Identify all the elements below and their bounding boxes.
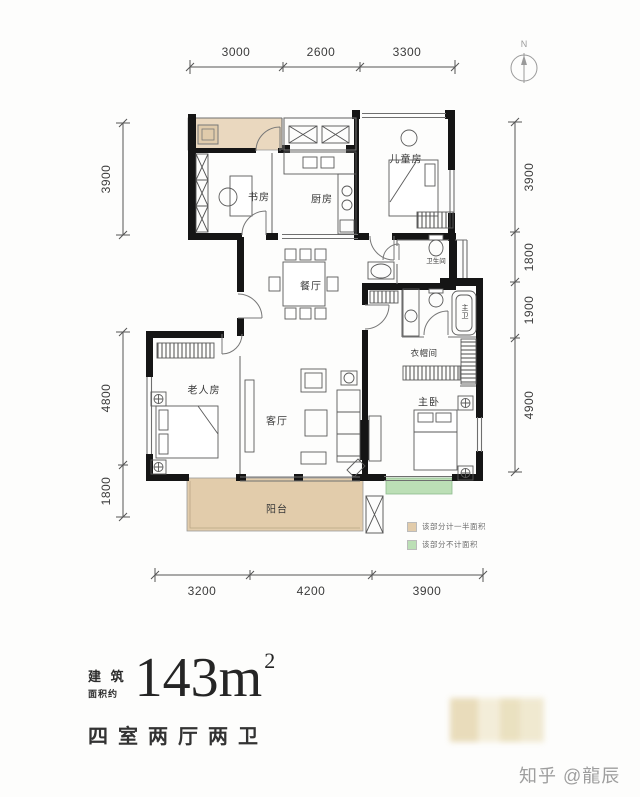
area-exponent: 2: [264, 648, 275, 673]
legend-row-half-area: 该部分计一半面积: [407, 521, 486, 532]
room-label-elder-room: 老人房: [188, 382, 221, 397]
dim-bottom-1: 3200: [188, 584, 217, 598]
room-label-master-bedroom: 主卧: [418, 394, 440, 409]
dim-left-2: 4800: [99, 384, 113, 413]
blurred-logo-blocks: [450, 698, 544, 742]
legend-swatch-excluded-area: [407, 540, 417, 550]
dim-left-1: 3900: [99, 165, 113, 194]
legend-label-excluded-area: 该部分不计面积: [422, 539, 478, 550]
dim-right-3: 1900: [522, 296, 536, 325]
room-label-study: 书房: [248, 189, 270, 204]
area-summary: 建 筑 面积约 143m2 四室两厅两卫: [88, 650, 348, 749]
north-label: N: [521, 39, 528, 49]
room-label-master-bath: 主卫: [459, 304, 469, 320]
dim-top-3: 3300: [393, 45, 422, 59]
layout-description: 四室两厅两卫: [88, 720, 348, 749]
area-summary-prefix: 建 筑 面积约: [88, 666, 127, 700]
dim-right-2: 1800: [522, 243, 536, 272]
room-label-balcony: 阳台: [266, 501, 288, 516]
area-value: 143m2: [135, 650, 276, 706]
area-prefix-line2: 面积约: [88, 687, 127, 700]
dim-top-2: 2600: [307, 45, 336, 59]
blur-block-4: [520, 698, 544, 742]
dim-right-4: 4900: [522, 391, 536, 420]
room-label-dining: 餐厅: [300, 278, 322, 293]
room-label-kitchen: 厨房: [311, 191, 333, 206]
blur-block-3: [500, 698, 520, 742]
room-label-bathroom: 卫生间: [426, 255, 446, 265]
dim-bottom-3: 3900: [413, 584, 442, 598]
dim-top-1: 3000: [222, 45, 251, 59]
room-label-children-room: 儿童房: [390, 151, 423, 166]
room-label-living: 客厅: [266, 413, 288, 428]
blur-block-2: [478, 698, 500, 742]
floorplan-page: 3000 2600 3300 3900 1800 1900 4900 3900 …: [0, 0, 640, 797]
dim-left-3: 1800: [99, 477, 113, 506]
dim-right-1: 3900: [522, 163, 536, 192]
dim-bottom-2: 4200: [297, 584, 326, 598]
legend-row-excluded-area: 该部分不计面积: [407, 539, 486, 550]
area-number-text: 143m: [135, 647, 263, 709]
legend: 该部分计一半面积 该部分不计面积: [407, 521, 486, 557]
blur-block-1: [450, 698, 478, 742]
area-prefix-line1: 建 筑: [88, 666, 127, 685]
furniture-layer: [151, 130, 476, 480]
legend-swatch-half-area: [407, 522, 417, 532]
watermark-text: 知乎 @龍辰: [519, 762, 620, 788]
north-compass-icon: [511, 53, 537, 83]
legend-label-half-area: 该部分计一半面积: [422, 521, 486, 532]
room-label-cloakroom: 衣帽间: [410, 347, 437, 359]
